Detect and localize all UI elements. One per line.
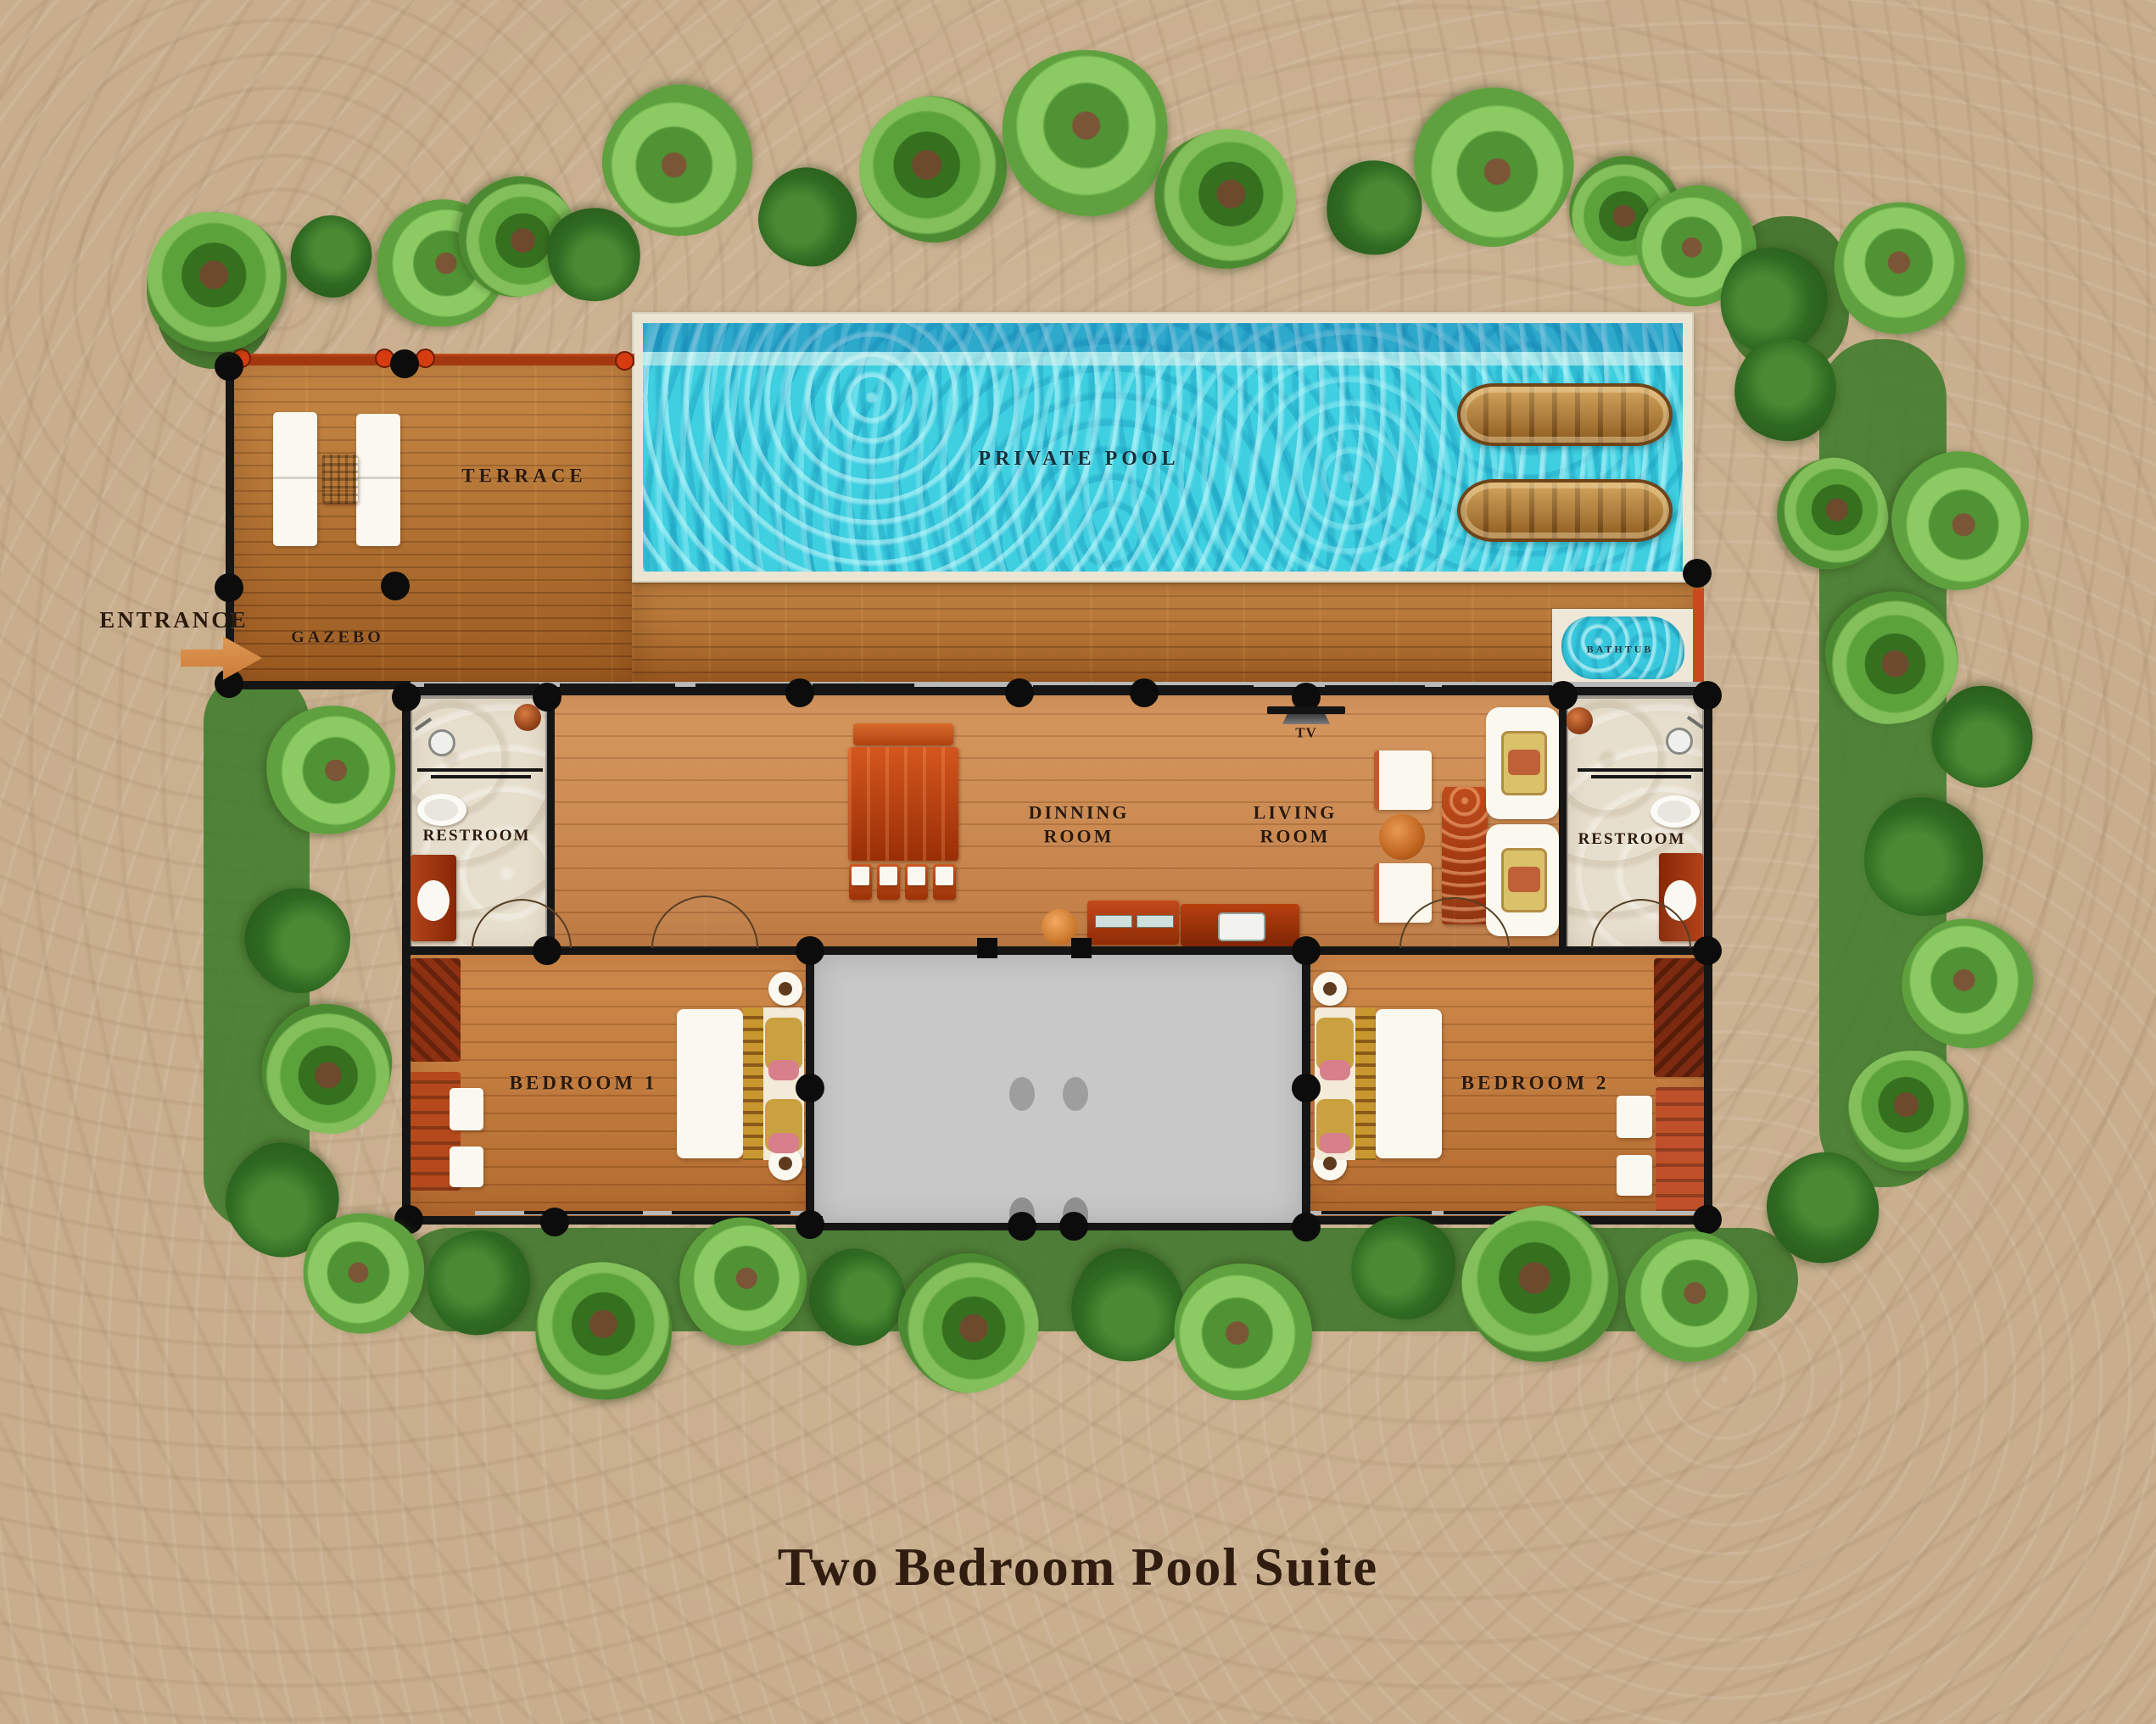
dresser [1656,1087,1706,1213]
living-room-label: LIVING ROOM [1232,801,1359,848]
wall-junction-dot [1683,559,1712,588]
wall-junction-dot [1693,681,1722,710]
shower-head [428,729,455,756]
center-patio [813,952,1304,1225]
sliding-door-rail [1321,1211,1432,1214]
sliding-door-rail [1325,685,1425,689]
sun-lounger [273,412,317,546]
tree [1392,63,1598,269]
tree [834,70,1031,268]
sliding-door-rail [1442,685,1552,689]
wall [1559,687,1567,954]
wall-junction-dot [215,573,243,602]
tv-label: TV [1295,723,1317,741]
dining-table [848,747,958,861]
tree [274,199,388,313]
dining-chair-cushion [852,867,869,885]
wall [806,1223,1310,1230]
bed-headboard [743,1007,763,1160]
wall-junction-dot [1292,936,1321,965]
plant-pot [1566,707,1593,734]
sliding-door-rail [813,683,914,687]
tv-screen [1267,706,1345,714]
wall-junction-dot [215,352,243,381]
nightstand-tray [779,1157,792,1170]
sliding-door-rail [695,683,794,687]
wall-junction-dot [533,683,561,711]
terrace-side-table [322,455,358,504]
daybed-pillow [1508,750,1540,775]
sliding-door-rail [1048,692,1121,695]
shower-head [1666,728,1693,755]
bedroom-stool [1617,1096,1652,1138]
tree [750,159,865,274]
dining-chair-cushion [880,867,897,885]
wall-junction-dot [1693,936,1722,965]
towel-bar [1578,768,1703,772]
wall-junction-dot [1549,681,1578,710]
bed-mattress [677,1009,743,1158]
toilet-seat [1657,801,1691,823]
sliding-door-rail [560,683,675,687]
wall-junction-dot [1292,1074,1321,1102]
tv-stand [1282,714,1330,724]
pool-float [1457,479,1673,542]
wall-junction-dot [540,1208,569,1236]
bed-mattress [1376,1009,1442,1158]
private-pool-label: PRIVATE POOL [978,446,1179,471]
sliding-door-rail [424,683,539,687]
pool-lane-band [643,352,1683,365]
door-post [977,938,997,958]
sliding-door-rail [439,690,524,694]
patio-stone [1063,1077,1088,1111]
nightstand-tray [779,982,792,996]
dining-chair-cushion [936,867,953,885]
wall-junction-dot [392,683,421,711]
edge-marker [615,351,634,371]
door-post [1071,938,1092,958]
wall-junction-dot [1292,1213,1321,1241]
wall-junction-dot [1059,1212,1088,1241]
bed-bolster [1320,1133,1350,1153]
wall-junction-dot [533,936,561,965]
wall-junction-dot [381,572,410,600]
wardrobe [1654,958,1706,1077]
daybed-pillow [1508,867,1540,892]
wall-junction-dot [796,1210,824,1239]
sliding-door-rail [1033,685,1137,689]
sliding-door-rail [575,690,660,694]
sliding-door-rail [711,690,779,694]
walkway-deck [632,583,1704,689]
kitchen-tray [1137,915,1174,928]
towel-bar [417,768,543,772]
pool-float [1457,383,1673,446]
bed-bolster [1320,1060,1350,1080]
patio-stone [1009,1077,1035,1111]
gazebo-label: GAZEBO [291,628,384,649]
bedroom1-label: BEDROOM 1 [510,1072,658,1096]
wall-junction-dot [796,936,824,965]
restroom-right-label: RESTROOM [1578,829,1686,850]
toilet-seat [424,799,458,821]
bathtub-label: BATHTUB [1587,644,1654,656]
tree [147,212,287,352]
sun-lounger-crease [273,477,317,479]
pool-deep-band [643,323,1683,352]
living-armchair [1374,750,1432,810]
bedroom2-label: BEDROOM 2 [1461,1072,1610,1096]
wall-junction-dot [1693,1205,1722,1234]
vanity-sink [417,880,450,921]
restroom-left-label: RESTROOM [423,826,531,846]
wall-junction-dot [1008,1212,1036,1241]
wall [402,946,1712,955]
wall-junction-dot [390,349,419,378]
nightstand-tray [1323,982,1337,996]
wardrobe [410,958,461,1062]
living-round-table [1379,814,1425,860]
plan-title: Two Bedroom Pool Suite [0,1537,2156,1598]
bedroom-stool [450,1088,483,1130]
nightstand-tray [1323,1157,1337,1170]
floor-plan: ENTRANCE GAZEBO TERRACE PRIVATE POOL BAT… [0,0,2156,1724]
sliding-door-rail [1457,692,1537,695]
towel-bar [431,775,531,778]
wall-junction-dot [796,1074,824,1102]
bedroom-stool [450,1147,483,1187]
towel-bar [1591,775,1691,778]
sliding-door-rail [672,1211,790,1214]
sliding-door-rail [1155,685,1254,689]
wall-junction-dot [785,678,814,707]
bed-bolster [768,1060,799,1080]
sliding-door-rail [1340,692,1410,695]
wall-junction-dot [1005,678,1034,707]
dining-chair-cushion [908,867,925,885]
kitchen-sink [1218,912,1265,941]
entrance-label: ENTRANCE [99,606,249,635]
sliding-door-rail [1170,692,1238,695]
wall-junction-dot [1130,678,1159,707]
sun-lounger [356,414,400,546]
walkway-edge-strip [1693,589,1704,689]
sun-lounger-crease [356,477,400,479]
terrace-label: TERRACE [461,465,586,489]
dining-table-top [853,723,953,745]
bedroom-stool [1617,1155,1652,1196]
bed-bolster [768,1133,799,1153]
wall [226,681,411,689]
sliding-door-rail [828,690,899,694]
dining-room-label: DINNING ROOM [1007,801,1151,848]
wall [402,687,411,1226]
bed-headboard [1355,1007,1376,1160]
kitchen-tray [1095,915,1132,928]
